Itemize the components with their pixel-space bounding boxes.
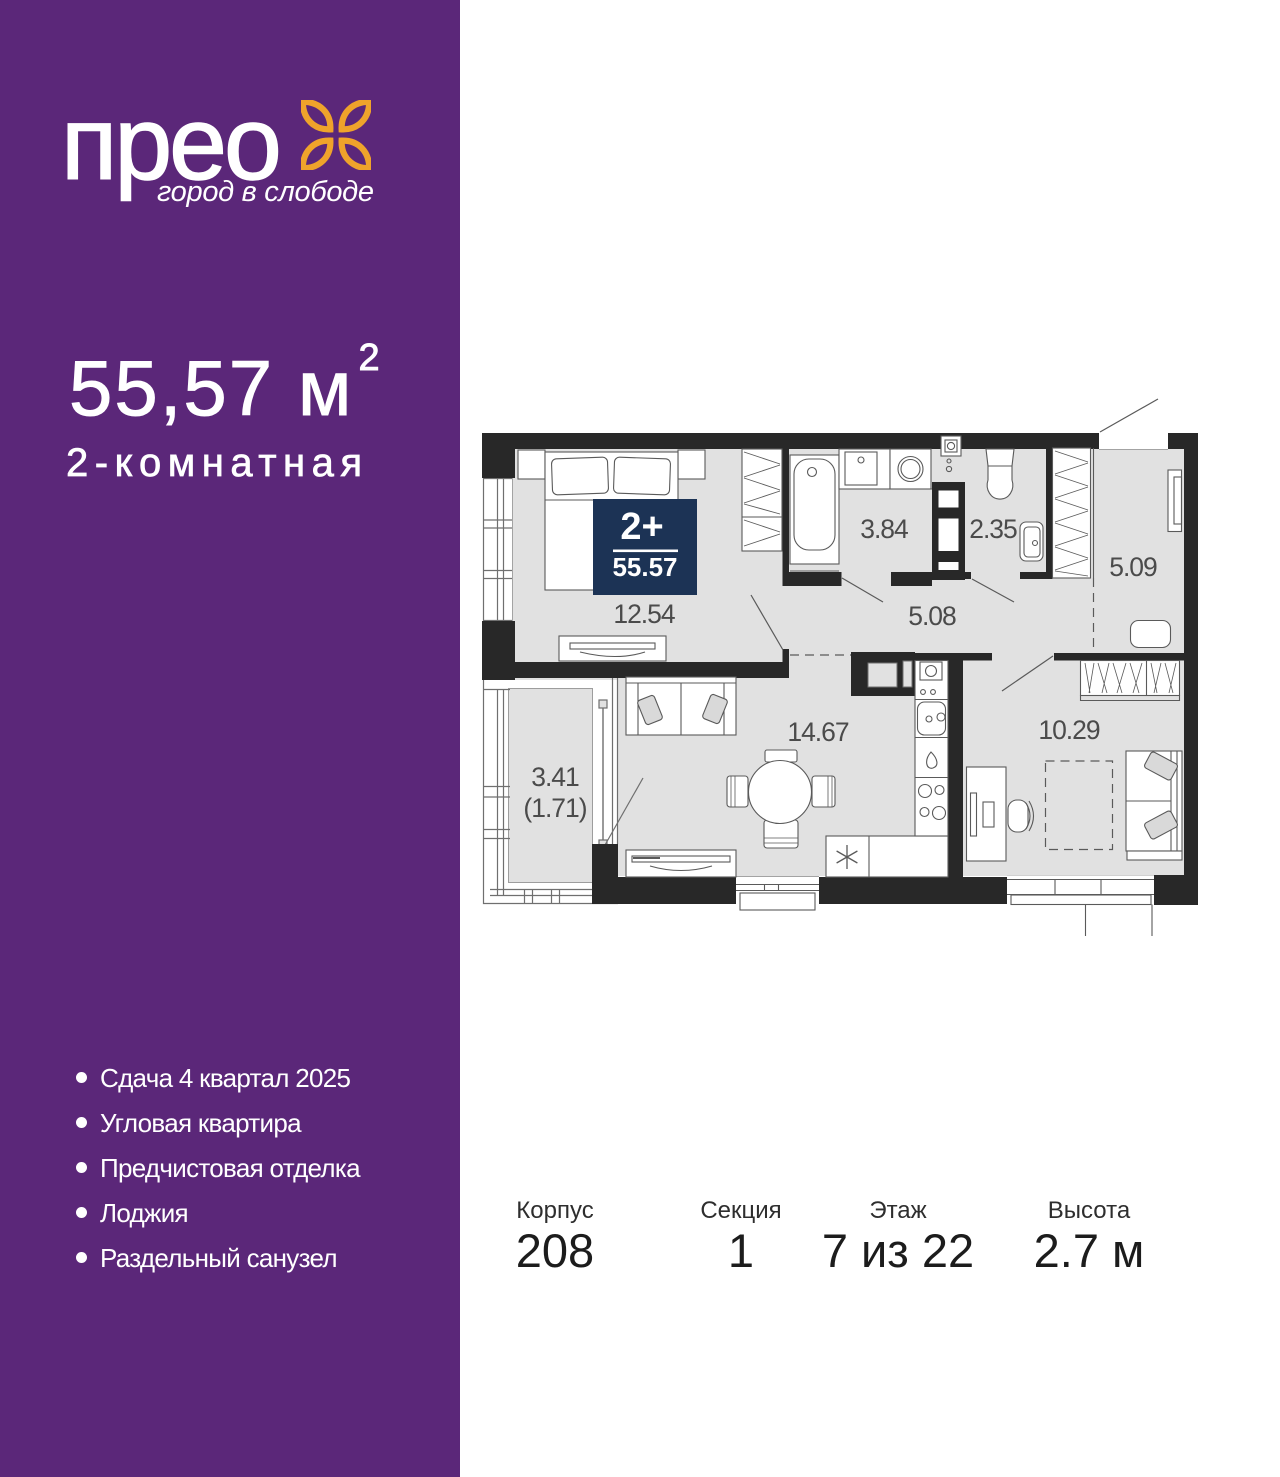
- svg-text:3.41: 3.41: [531, 762, 579, 792]
- svg-text:12.54: 12.54: [613, 599, 675, 629]
- svg-text:(1.71): (1.71): [523, 793, 586, 823]
- svg-text:55.57: 55.57: [612, 552, 677, 582]
- svg-text:5.09: 5.09: [1109, 552, 1157, 582]
- svg-text:5.08: 5.08: [908, 601, 956, 631]
- svg-text:10.29: 10.29: [1038, 715, 1100, 745]
- svg-text:2+: 2+: [620, 506, 663, 548]
- svg-text:3.84: 3.84: [860, 514, 908, 544]
- svg-text:14.67: 14.67: [787, 717, 849, 747]
- svg-text:2.35: 2.35: [969, 514, 1017, 544]
